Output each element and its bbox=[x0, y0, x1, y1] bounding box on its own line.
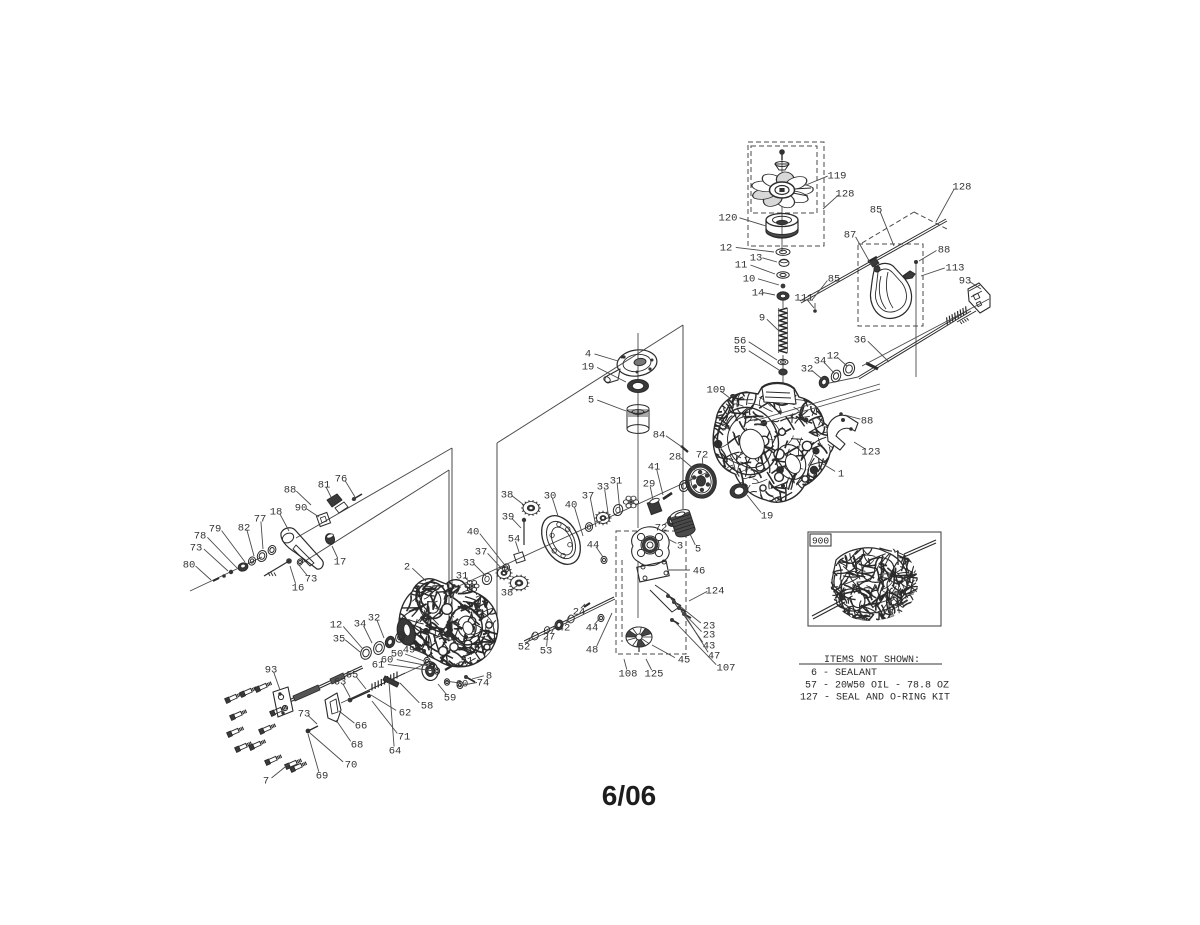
svg-text:27: 27 bbox=[543, 632, 556, 644]
svg-text:ITEMS NOT SHOWN:: ITEMS NOT SHOWN: bbox=[824, 655, 920, 666]
svg-text:6 - SEALANT: 6 - SEALANT bbox=[811, 668, 877, 679]
svg-text:46: 46 bbox=[693, 566, 706, 578]
svg-text:73: 73 bbox=[190, 543, 203, 555]
svg-text:111: 111 bbox=[795, 293, 814, 305]
svg-text:32: 32 bbox=[801, 364, 814, 376]
svg-text:68: 68 bbox=[351, 740, 364, 752]
svg-text:34: 34 bbox=[814, 356, 827, 368]
svg-text:84: 84 bbox=[653, 430, 666, 442]
svg-text:14: 14 bbox=[752, 288, 765, 300]
svg-text:63: 63 bbox=[334, 677, 347, 689]
svg-text:38: 38 bbox=[501, 490, 514, 502]
svg-text:125: 125 bbox=[645, 669, 664, 681]
svg-text:5: 5 bbox=[695, 544, 701, 556]
svg-text:62: 62 bbox=[399, 708, 412, 720]
svg-text:85: 85 bbox=[870, 205, 883, 217]
svg-text:32: 32 bbox=[368, 613, 381, 625]
svg-text:64: 64 bbox=[389, 746, 402, 758]
svg-text:69: 69 bbox=[316, 771, 329, 783]
svg-text:28: 28 bbox=[669, 452, 682, 464]
svg-text:18: 18 bbox=[270, 507, 283, 519]
svg-text:40: 40 bbox=[565, 500, 578, 512]
svg-text:900: 900 bbox=[812, 536, 829, 547]
svg-text:65: 65 bbox=[346, 670, 359, 682]
svg-text:13: 13 bbox=[750, 253, 763, 265]
svg-text:17: 17 bbox=[334, 557, 347, 569]
svg-text:93: 93 bbox=[265, 665, 278, 677]
svg-text:66: 66 bbox=[355, 721, 368, 733]
svg-text:19: 19 bbox=[582, 362, 595, 374]
svg-text:73: 73 bbox=[305, 574, 318, 586]
svg-text:58: 58 bbox=[421, 701, 434, 713]
svg-text:31: 31 bbox=[610, 476, 623, 488]
svg-text:55: 55 bbox=[734, 345, 747, 357]
svg-text:85: 85 bbox=[828, 274, 841, 286]
svg-text:53: 53 bbox=[540, 646, 553, 658]
svg-text:113: 113 bbox=[946, 263, 965, 275]
svg-text:93: 93 bbox=[959, 276, 972, 288]
svg-text:44: 44 bbox=[586, 623, 599, 635]
svg-text:82: 82 bbox=[238, 523, 251, 535]
svg-text:3: 3 bbox=[677, 541, 683, 553]
svg-text:19: 19 bbox=[761, 511, 774, 523]
svg-text:81: 81 bbox=[318, 480, 331, 492]
svg-text:79: 79 bbox=[209, 524, 222, 536]
svg-text:16: 16 bbox=[292, 583, 305, 595]
svg-text:107: 107 bbox=[717, 663, 736, 675]
svg-text:34: 34 bbox=[354, 619, 367, 631]
svg-text:51: 51 bbox=[461, 656, 474, 668]
svg-text:49: 49 bbox=[403, 645, 416, 657]
svg-text:30: 30 bbox=[544, 491, 557, 503]
svg-text:120: 120 bbox=[719, 213, 738, 225]
svg-text:57 - 20W50 OIL - 78.8 OZ: 57 - 20W50 OIL - 78.8 OZ bbox=[805, 681, 949, 692]
svg-text:36: 36 bbox=[854, 335, 867, 347]
svg-text:77: 77 bbox=[254, 514, 267, 526]
svg-text:124: 124 bbox=[706, 586, 725, 598]
svg-text:11: 11 bbox=[735, 260, 748, 272]
svg-text:119: 119 bbox=[828, 171, 847, 183]
svg-text:88: 88 bbox=[284, 485, 297, 497]
svg-text:73: 73 bbox=[298, 709, 311, 721]
svg-text:70: 70 bbox=[345, 760, 358, 772]
svg-text:72: 72 bbox=[696, 450, 709, 462]
svg-text:33: 33 bbox=[463, 558, 476, 570]
svg-text:74: 74 bbox=[477, 678, 490, 690]
svg-text:109: 109 bbox=[707, 385, 726, 397]
svg-text:7: 7 bbox=[263, 776, 269, 788]
svg-text:5: 5 bbox=[588, 395, 594, 407]
svg-text:12: 12 bbox=[827, 351, 840, 363]
svg-text:72: 72 bbox=[655, 523, 668, 535]
svg-text:61: 61 bbox=[372, 660, 385, 672]
svg-text:37: 37 bbox=[582, 491, 595, 503]
svg-text:38: 38 bbox=[501, 588, 514, 600]
svg-text:12: 12 bbox=[720, 243, 733, 255]
svg-text:29: 29 bbox=[643, 479, 656, 491]
svg-text:41: 41 bbox=[648, 462, 661, 474]
svg-text:76: 76 bbox=[335, 474, 348, 486]
svg-text:87: 87 bbox=[844, 230, 857, 242]
svg-text:47: 47 bbox=[708, 651, 721, 663]
svg-text:4: 4 bbox=[585, 349, 591, 361]
svg-text:45: 45 bbox=[678, 655, 691, 667]
svg-text:71: 71 bbox=[398, 732, 411, 744]
svg-text:59: 59 bbox=[444, 693, 457, 705]
svg-text:60: 60 bbox=[456, 679, 469, 691]
svg-text:128: 128 bbox=[836, 189, 855, 201]
svg-text:10: 10 bbox=[743, 274, 756, 286]
svg-text:42: 42 bbox=[558, 623, 571, 635]
svg-text:44: 44 bbox=[587, 540, 600, 552]
svg-text:35: 35 bbox=[333, 634, 346, 646]
svg-text:52: 52 bbox=[518, 642, 531, 654]
svg-text:6/06: 6/06 bbox=[602, 780, 657, 811]
svg-text:24: 24 bbox=[573, 607, 586, 619]
svg-text:2: 2 bbox=[404, 562, 410, 574]
svg-text:88: 88 bbox=[861, 416, 874, 428]
svg-text:78: 78 bbox=[194, 531, 207, 543]
svg-text:88: 88 bbox=[938, 245, 951, 257]
svg-text:31: 31 bbox=[456, 571, 469, 583]
svg-text:80: 80 bbox=[183, 560, 196, 572]
svg-text:90: 90 bbox=[295, 503, 308, 515]
svg-text:48: 48 bbox=[586, 645, 599, 657]
svg-text:9: 9 bbox=[759, 313, 765, 325]
svg-text:37: 37 bbox=[475, 547, 488, 559]
svg-text:123: 123 bbox=[862, 447, 881, 459]
svg-text:39: 39 bbox=[502, 512, 515, 524]
svg-text:54: 54 bbox=[508, 534, 521, 546]
svg-text:12: 12 bbox=[330, 620, 343, 632]
svg-text:33: 33 bbox=[597, 482, 610, 494]
svg-text:108: 108 bbox=[619, 669, 638, 681]
svg-text:1: 1 bbox=[838, 469, 844, 481]
svg-text:127 - SEAL AND O-RING KIT: 127 - SEAL AND O-RING KIT bbox=[800, 693, 950, 704]
svg-text:40: 40 bbox=[467, 527, 480, 539]
svg-text:128: 128 bbox=[953, 182, 972, 194]
